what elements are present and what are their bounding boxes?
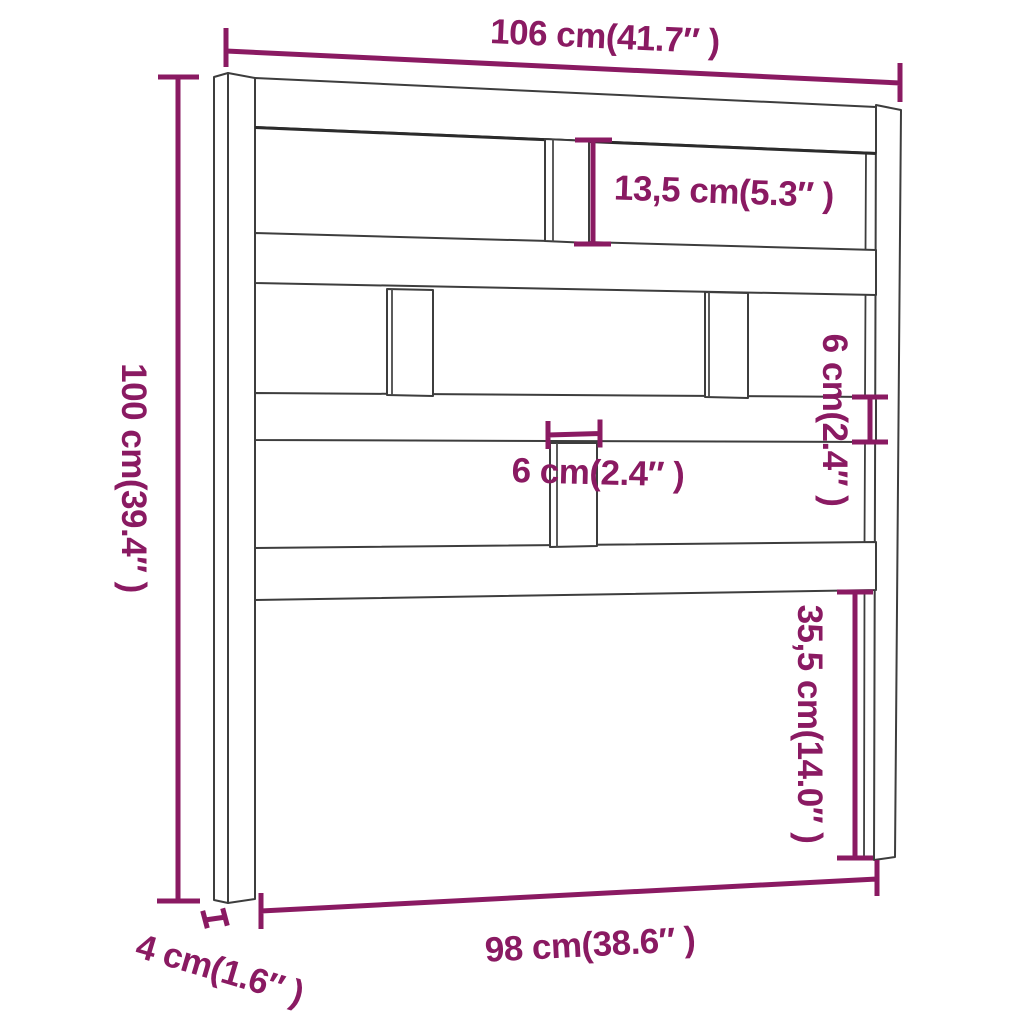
overall-height-dimension-line [157, 77, 200, 901]
headboard-dimension-diagram: 106 cm(41.7″ ) 100 cm(39.4″ ) 13,5 cm(5.… [0, 0, 1024, 1024]
diagram-canvas: 106 cm(41.7″ ) 100 cm(39.4″ ) 13,5 cm(5.… [0, 0, 1024, 1024]
left-leg-front-face [228, 73, 255, 903]
overall-width-label: 106 cm(41.7″ ) [489, 12, 720, 61]
slat-width-label: 6 cm(2.4″ ) [511, 451, 685, 495]
leg-width-label: 4 cm(1.6″ ) [131, 926, 308, 1012]
middle-slat-right [705, 292, 748, 398]
inner-width-label: 98 cm(38.6″ ) [484, 920, 696, 970]
bottom-opening-dimension-line [837, 592, 873, 858]
overall-height-label: 100 cm(39.4″ ) [114, 363, 153, 593]
left-leg-side-face [214, 73, 228, 903]
upper-slat [545, 139, 589, 243]
bottom-opening-label: 35,5 cm(14.0″ ) [790, 605, 829, 844]
right-leg-front-face [874, 105, 901, 860]
inner-width-dimension-line [261, 860, 877, 929]
bottom-rail [255, 542, 876, 600]
top-opening-label: 13,5 cm(5.3″ ) [613, 168, 834, 215]
rail-height-label: 6 cm(2.4″ ) [815, 334, 854, 507]
leg-width-dimension-line [203, 908, 228, 928]
middle-slat-left [387, 289, 433, 396]
